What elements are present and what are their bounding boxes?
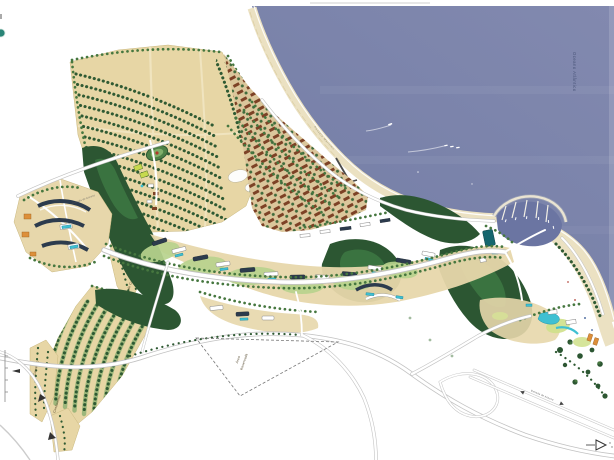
corner-road bbox=[0, 425, 30, 460]
lawn bbox=[492, 312, 508, 320]
building bbox=[22, 232, 29, 237]
building bbox=[593, 338, 599, 346]
lone-tree bbox=[429, 339, 432, 342]
reserved-label-line2: Reservada bbox=[239, 353, 248, 371]
edge-speck bbox=[609, 442, 610, 443]
edge-speck bbox=[611, 446, 612, 447]
building bbox=[587, 334, 593, 342]
edge-marker-dot bbox=[0, 29, 5, 37]
direction-arrow-icon bbox=[596, 440, 606, 450]
pool bbox=[526, 304, 532, 306]
building bbox=[30, 252, 36, 256]
master-plan-map: Oceano Atlântico Passeio Marítim bbox=[0, 0, 614, 460]
highway-branch-south-fill bbox=[302, 335, 376, 460]
reserved-parcel-boundary bbox=[196, 338, 338, 396]
building bbox=[566, 319, 576, 324]
trees bbox=[556, 352, 606, 398]
site-plan-canvas: Oceano Atlântico Passeio Marítim bbox=[0, 0, 614, 460]
forest-southeast-dots bbox=[557, 339, 608, 398]
building bbox=[24, 214, 31, 219]
lone-tree bbox=[409, 317, 412, 320]
ocean-label: Oceano Atlântico bbox=[572, 52, 577, 92]
dual-carriageway-b-fill bbox=[470, 377, 614, 438]
reserved-label-line1: Área bbox=[235, 355, 241, 363]
reserved-parcel: Área Reservada bbox=[196, 338, 338, 396]
direction-arrow-west-icon bbox=[12, 369, 20, 373]
lone-tree bbox=[451, 355, 454, 358]
edge-speck bbox=[0, 14, 2, 19]
